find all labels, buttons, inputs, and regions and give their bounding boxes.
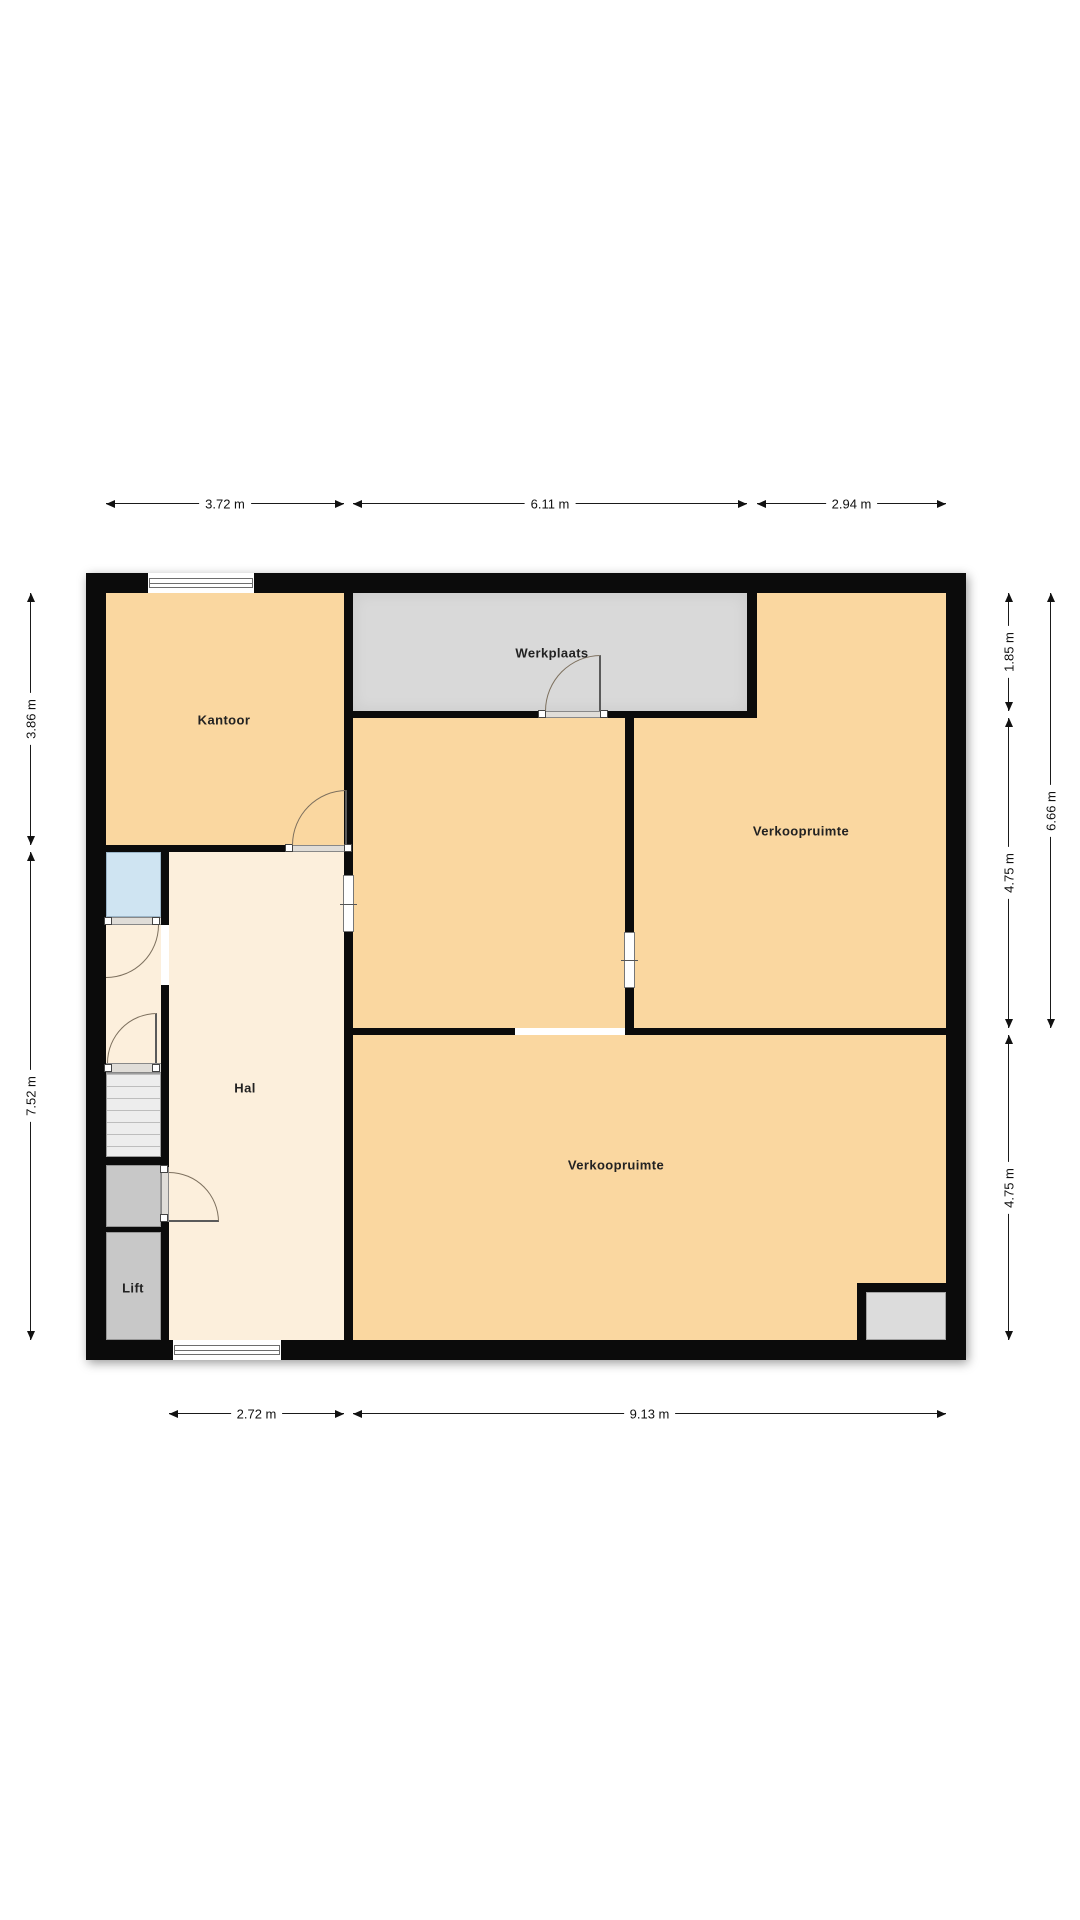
arrow-down-icon <box>1047 1019 1055 1028</box>
dimension-bottom-1: 2.72 m <box>169 1413 344 1414</box>
room-label-verkoopruimte-rechts: Verkoopruimte <box>753 824 849 839</box>
arrow-down-icon <box>1005 1331 1013 1340</box>
dimension-label: 2.94 m <box>826 497 878 512</box>
dimension-right-outer-1: 6.66 m <box>1050 593 1051 1028</box>
arrow-left-icon <box>353 1410 362 1418</box>
room-floor-wet-room <box>106 852 161 917</box>
arrow-down-icon <box>1005 702 1013 711</box>
arrow-right-icon <box>937 500 946 508</box>
stairs <box>106 1073 161 1157</box>
dimension-bottom-2: 9.13 m <box>353 1413 946 1414</box>
door-jamb <box>285 844 293 852</box>
arrow-left-icon <box>757 500 766 508</box>
dimension-label: 2.72 m <box>231 1407 283 1422</box>
wall-left-column-a <box>161 845 169 925</box>
wall-kantoor-bottom <box>106 845 292 852</box>
wall-verkoop-right-bottom <box>625 1028 946 1035</box>
window-bottom-glazing <box>174 1345 280 1355</box>
door-jamb <box>160 1165 168 1173</box>
dimension-right-inner-3: 4.75 m <box>1008 1035 1009 1340</box>
room-floor-verkoopruimte-rechts-boven <box>757 593 946 718</box>
wall-outer-right <box>946 573 966 1360</box>
dimension-left-2: 7.52 m <box>30 852 31 1340</box>
door-threshold-kantoor <box>292 845 344 852</box>
wall-werkplaats-bottom-right <box>601 711 747 718</box>
dimension-right-inner-1: 1.85 m <box>1008 593 1009 711</box>
room-floor-closet <box>866 1292 946 1340</box>
wall-stairs-bottom <box>106 1157 169 1165</box>
arrow-right-icon <box>335 1410 344 1418</box>
window-hal-verkoop <box>343 875 354 932</box>
wall-verkoop-divider-upper <box>625 718 634 932</box>
arrow-left-icon <box>169 1410 178 1418</box>
door-jamb <box>538 710 546 718</box>
room-floor-verkoopruimte-midden <box>353 718 625 1028</box>
dimension-left-1: 3.86 m <box>30 593 31 845</box>
wall-left-column-b <box>161 985 169 1168</box>
room-label-lift: Lift <box>122 1281 144 1296</box>
arrow-left-icon <box>353 500 362 508</box>
room-label-kantoor: Kantoor <box>198 713 251 728</box>
door-jamb <box>152 917 160 925</box>
arrow-up-icon <box>1005 1035 1013 1044</box>
dimension-label: 4.75 m <box>1002 847 1017 899</box>
arrow-right-icon <box>335 500 344 508</box>
dimension-label: 1.85 m <box>1002 626 1017 678</box>
room-floor-storage <box>106 1165 161 1227</box>
door-jamb <box>104 1064 112 1072</box>
room-label-hal: Hal <box>234 1081 255 1096</box>
door-jamb <box>152 1064 160 1072</box>
dimension-label: 3.86 m <box>24 693 39 745</box>
dimension-right-inner-2: 4.75 m <box>1008 718 1009 1028</box>
arrow-right-icon <box>738 500 747 508</box>
wall-werkplaats-right <box>747 593 757 718</box>
door-jamb <box>104 917 112 925</box>
room-label-verkoopruimte-onder: Verkoopruimte <box>568 1158 664 1173</box>
arrow-right-icon <box>937 1410 946 1418</box>
window-top-wall <box>148 573 254 593</box>
door-jamb <box>160 1214 168 1222</box>
floorplan-page: Kantoor Werkplaats Verkoopruimte Verkoop… <box>0 0 1080 1920</box>
room-label-werkplaats: Werkplaats <box>515 646 588 661</box>
dimension-label: 4.75 m <box>1002 1162 1017 1214</box>
wall-closet-top <box>857 1283 946 1292</box>
arrow-down-icon <box>1005 1019 1013 1028</box>
door-threshold-werkplaats <box>545 711 601 718</box>
window-verkoop-divider <box>624 932 635 988</box>
arrow-up-icon <box>27 593 35 602</box>
wall-outer-left <box>86 573 106 1360</box>
wall-verkoop-mid-bottom <box>353 1028 515 1035</box>
arrow-up-icon <box>27 852 35 861</box>
window-top-glazing <box>149 578 253 588</box>
wall-storage-lift <box>106 1227 169 1232</box>
wall-closet-left <box>857 1283 866 1340</box>
wall-werkplaats-bottom-left <box>353 711 545 718</box>
window-bottom-wall <box>173 1340 281 1360</box>
arrow-up-icon <box>1005 718 1013 727</box>
dimension-top-3: 2.94 m <box>757 503 946 504</box>
wall-left-column-c <box>161 1222 169 1340</box>
arrow-up-icon <box>1005 593 1013 602</box>
arrow-up-icon <box>1047 593 1055 602</box>
wall-hal-right-lower <box>344 932 353 1340</box>
door-jamb <box>600 710 608 718</box>
dimension-top-2: 6.11 m <box>353 503 747 504</box>
dimension-label: 9.13 m <box>624 1407 676 1422</box>
arrow-left-icon <box>106 500 115 508</box>
dimension-label: 6.66 m <box>1044 785 1059 837</box>
door-jamb <box>344 844 352 852</box>
arrow-down-icon <box>27 1331 35 1340</box>
arrow-down-icon <box>27 836 35 845</box>
dimension-label: 7.52 m <box>24 1070 39 1122</box>
dimension-label: 3.72 m <box>199 497 251 512</box>
dimension-top-1: 3.72 m <box>106 503 344 504</box>
room-floor-hal <box>169 852 344 1340</box>
dimension-label: 6.11 m <box>525 497 576 512</box>
room-floor-verkoopruimte-rechts <box>634 718 946 1028</box>
